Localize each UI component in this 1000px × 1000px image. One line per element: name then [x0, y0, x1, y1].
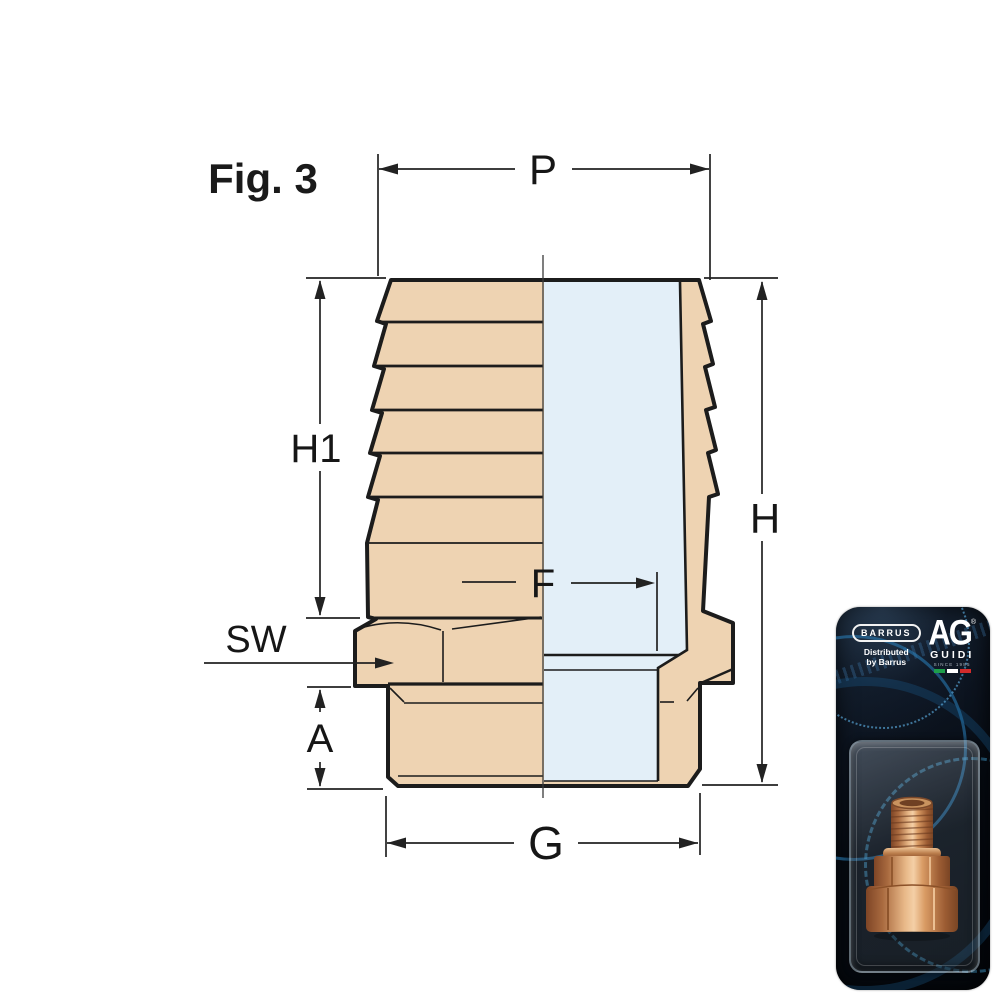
g-label: G — [528, 817, 564, 869]
h1-label: H1 — [290, 427, 341, 471]
dim-g: G — [386, 793, 700, 869]
h-arrow-bottom — [757, 764, 768, 783]
p-arrow-right — [690, 164, 709, 175]
h1-arrow-bottom — [315, 597, 326, 616]
flag-white — [947, 669, 958, 673]
flag-red — [960, 669, 971, 673]
registered-mark: ® — [971, 619, 976, 626]
p-arrow-left — [379, 164, 398, 175]
distributed-text: Distributed by Barrus — [852, 647, 921, 667]
barrus-block: BARRUS Distributed by Barrus — [852, 623, 921, 667]
blister-window — [849, 740, 980, 973]
sw-label: SW — [225, 619, 286, 661]
p-label: P — [529, 146, 557, 193]
flag-green — [934, 669, 945, 673]
guidi-since-text: SINCE 1985 — [928, 662, 976, 667]
fitting-shadow — [874, 931, 950, 941]
fitting-outline — [355, 255, 733, 798]
h-label: H — [750, 495, 780, 542]
fitting-lower-hex-nut — [866, 886, 958, 932]
fitting-bore-opening — [900, 800, 925, 806]
italian-flag-icon — [928, 669, 976, 673]
guidi-block: AG® GUIDI SINCE 1985 — [928, 619, 976, 673]
product-package: BARRUS Distributed by Barrus AG® GUIDI S… — [836, 607, 990, 990]
page: P H1 H — [0, 0, 1000, 1000]
dim-p: P — [378, 146, 710, 280]
dim-a: A — [307, 687, 383, 789]
package-brand-row: BARRUS Distributed by Barrus AG® GUIDI S… — [836, 619, 990, 673]
distributed-line2: by Barrus — [852, 657, 921, 667]
g-arrow-right — [679, 838, 698, 849]
a-arrow-bottom — [315, 768, 326, 787]
barrus-logo: BARRUS — [852, 624, 921, 642]
fitting-upper-hex — [874, 856, 950, 888]
a-label: A — [307, 717, 334, 761]
g-arrow-left — [387, 838, 406, 849]
f-label: F — [531, 562, 555, 606]
distributed-line1: Distributed — [852, 647, 921, 657]
ag-logo: AG — [928, 617, 971, 649]
brass-fitting-photo — [858, 794, 968, 962]
h-arrow-top — [757, 281, 768, 300]
a-arrow-top — [315, 689, 326, 708]
figure-title: Fig. 3 — [208, 155, 318, 202]
dim-h: H — [702, 278, 780, 785]
h1-arrow-top — [315, 280, 326, 299]
